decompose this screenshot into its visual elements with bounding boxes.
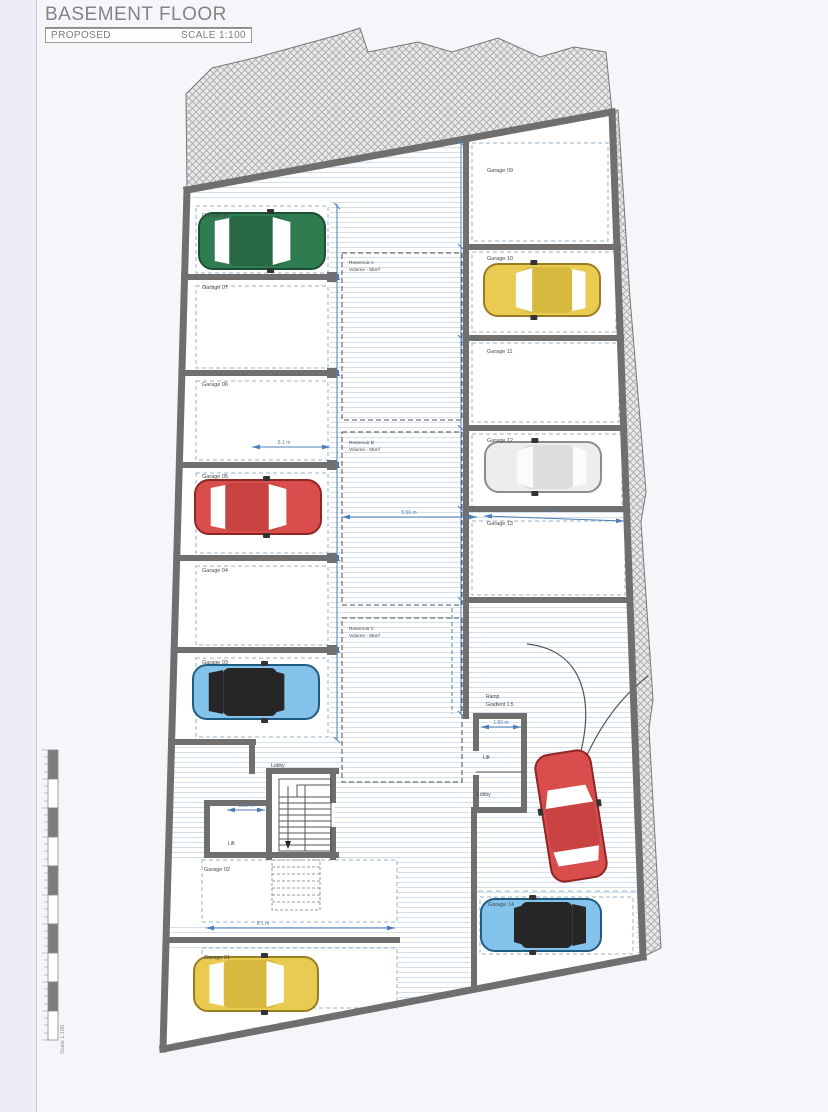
- lift-left-label: Lift: [228, 841, 235, 847]
- garage-04-label: Garage 04: [202, 568, 228, 574]
- scale-bar-ticks: [42, 750, 48, 1040]
- garage-01-label: Garage 01: [204, 955, 230, 961]
- lobby-right-label: Lobby: [477, 792, 491, 798]
- ramp-label: Ramp: [486, 694, 500, 700]
- garage-14-label: Garage 14: [488, 902, 514, 908]
- garage-08-label: Garage 08: [202, 213, 228, 219]
- car-garage-10: [484, 260, 600, 320]
- reservoir-b-volume: Volume - 55m³: [349, 447, 381, 453]
- reservoir-a-volume: Volume - 55m³: [349, 267, 381, 273]
- car-garage-01: [194, 953, 318, 1015]
- dim-garage02-width: 6.1 m: [257, 921, 270, 927]
- lobby-left-label: Lobby: [271, 763, 285, 769]
- dim-bay-width: 5.1 m: [278, 440, 291, 446]
- lift-right-label: Lift: [483, 755, 490, 761]
- dim-lift-left-width: 1.55 m: [238, 803, 253, 809]
- floor-plan-canvas: Scale 1:100 Garage 08 Garage 07 Garage 0…: [0, 0, 828, 1112]
- dim-garage13-width: 3.7 m: [543, 508, 556, 514]
- car-garage-05: [195, 476, 321, 538]
- garage-02-label: Garage 02: [204, 867, 230, 873]
- dim-lift-right-width: 1.50 m: [493, 720, 508, 726]
- dim-corridor-width: 5.56 m: [401, 510, 416, 516]
- garage-13-label: Garage 13: [487, 521, 513, 527]
- garage-11-label: Garage 11: [487, 349, 513, 355]
- garage-12-label: Garage 12: [487, 438, 513, 444]
- reservoir-c-name: Reservoir C: [349, 626, 375, 632]
- reservoir-b-name: Reservoir B: [349, 440, 374, 446]
- ramp-gradient-label: Gradient 1:5: [486, 702, 514, 708]
- garage-07-label: Garage 07: [202, 285, 228, 291]
- reservoir-c-volume: Volume - 55m³: [349, 633, 381, 639]
- garage-10-label: Garage 10: [487, 256, 513, 262]
- car-garage-03: [193, 661, 319, 723]
- scale-bar: Scale 1:100: [42, 750, 66, 1054]
- reservoir-a-name: Reservoir A: [349, 260, 375, 266]
- car-garage-12: [485, 438, 601, 496]
- scale-bar-label: Scale 1:100: [60, 1025, 66, 1054]
- garage-03-label: Garage 03: [202, 660, 228, 666]
- garage-06-label: Garage 06: [202, 382, 228, 388]
- garage-05-label: Garage 05: [202, 474, 228, 480]
- garage-09-label: Garage 09: [487, 168, 513, 174]
